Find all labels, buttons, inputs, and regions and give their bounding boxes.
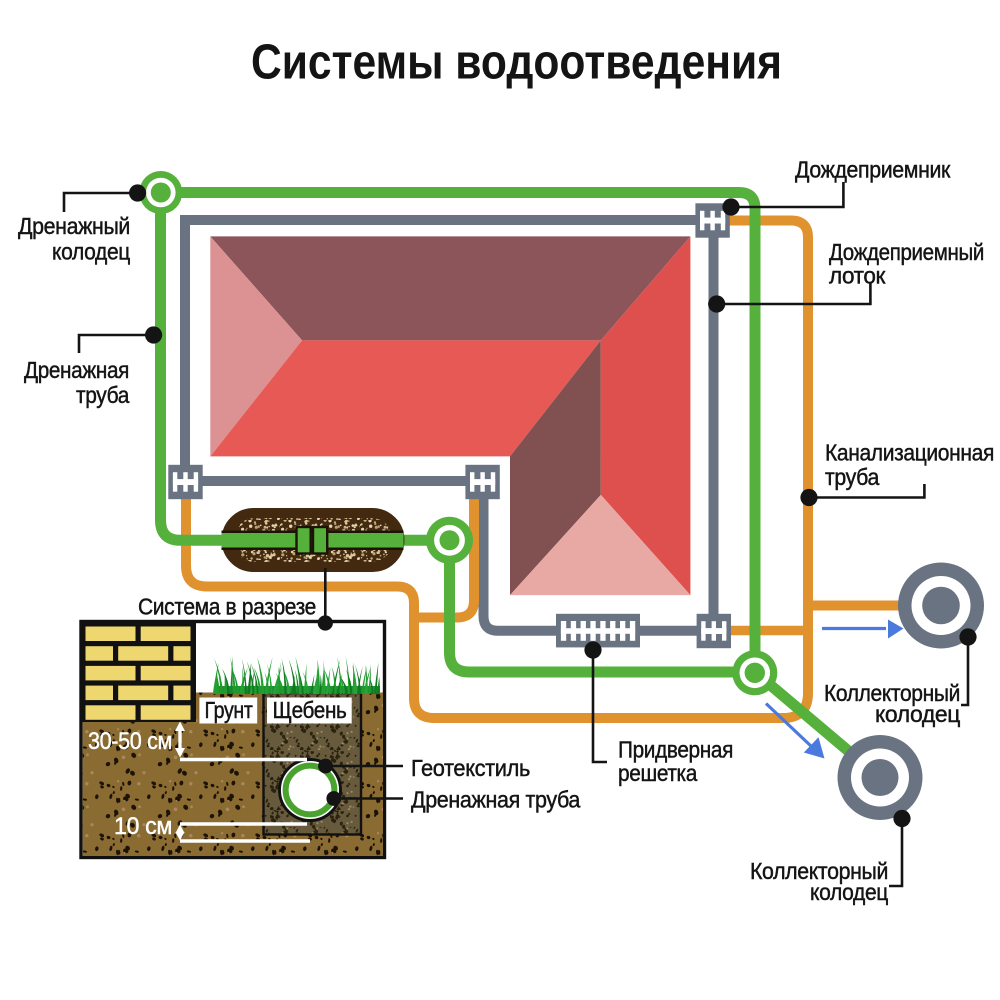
svg-text:Дождеприемный: Дождеприемный [829, 239, 984, 265]
svg-text:Система в разрезе: Система в разрезе [138, 594, 316, 620]
svg-text:Канализационная: Канализационная [825, 440, 994, 466]
svg-text:10 см: 10 см [114, 813, 172, 840]
svg-text:решетка: решетка [618, 760, 698, 786]
svg-text:Дренажная труба: Дренажная труба [411, 787, 581, 813]
svg-text:лоток: лоток [829, 263, 886, 289]
svg-text:Дождеприемник: Дождеприемник [795, 157, 951, 183]
svg-text:Дренажная: Дренажная [24, 357, 129, 383]
svg-text:Придверная: Придверная [618, 737, 733, 763]
svg-text:труба: труба [825, 464, 880, 490]
svg-text:колодец: колодец [875, 701, 960, 727]
svg-text:Грунт: Грунт [205, 697, 254, 723]
svg-text:колодец: колодец [810, 879, 888, 905]
svg-text:Щебень: Щебень [273, 697, 347, 723]
svg-text:колодец: колодец [52, 239, 130, 265]
svg-text:Дренажный: Дренажный [18, 213, 130, 239]
svg-text:30-50 см: 30-50 см [88, 728, 172, 755]
svg-text:труба: труба [76, 382, 130, 408]
svg-text:Геотекстиль: Геотекстиль [411, 755, 530, 781]
svg-text:Системы водоотведения: Системы водоотведения [251, 36, 782, 90]
